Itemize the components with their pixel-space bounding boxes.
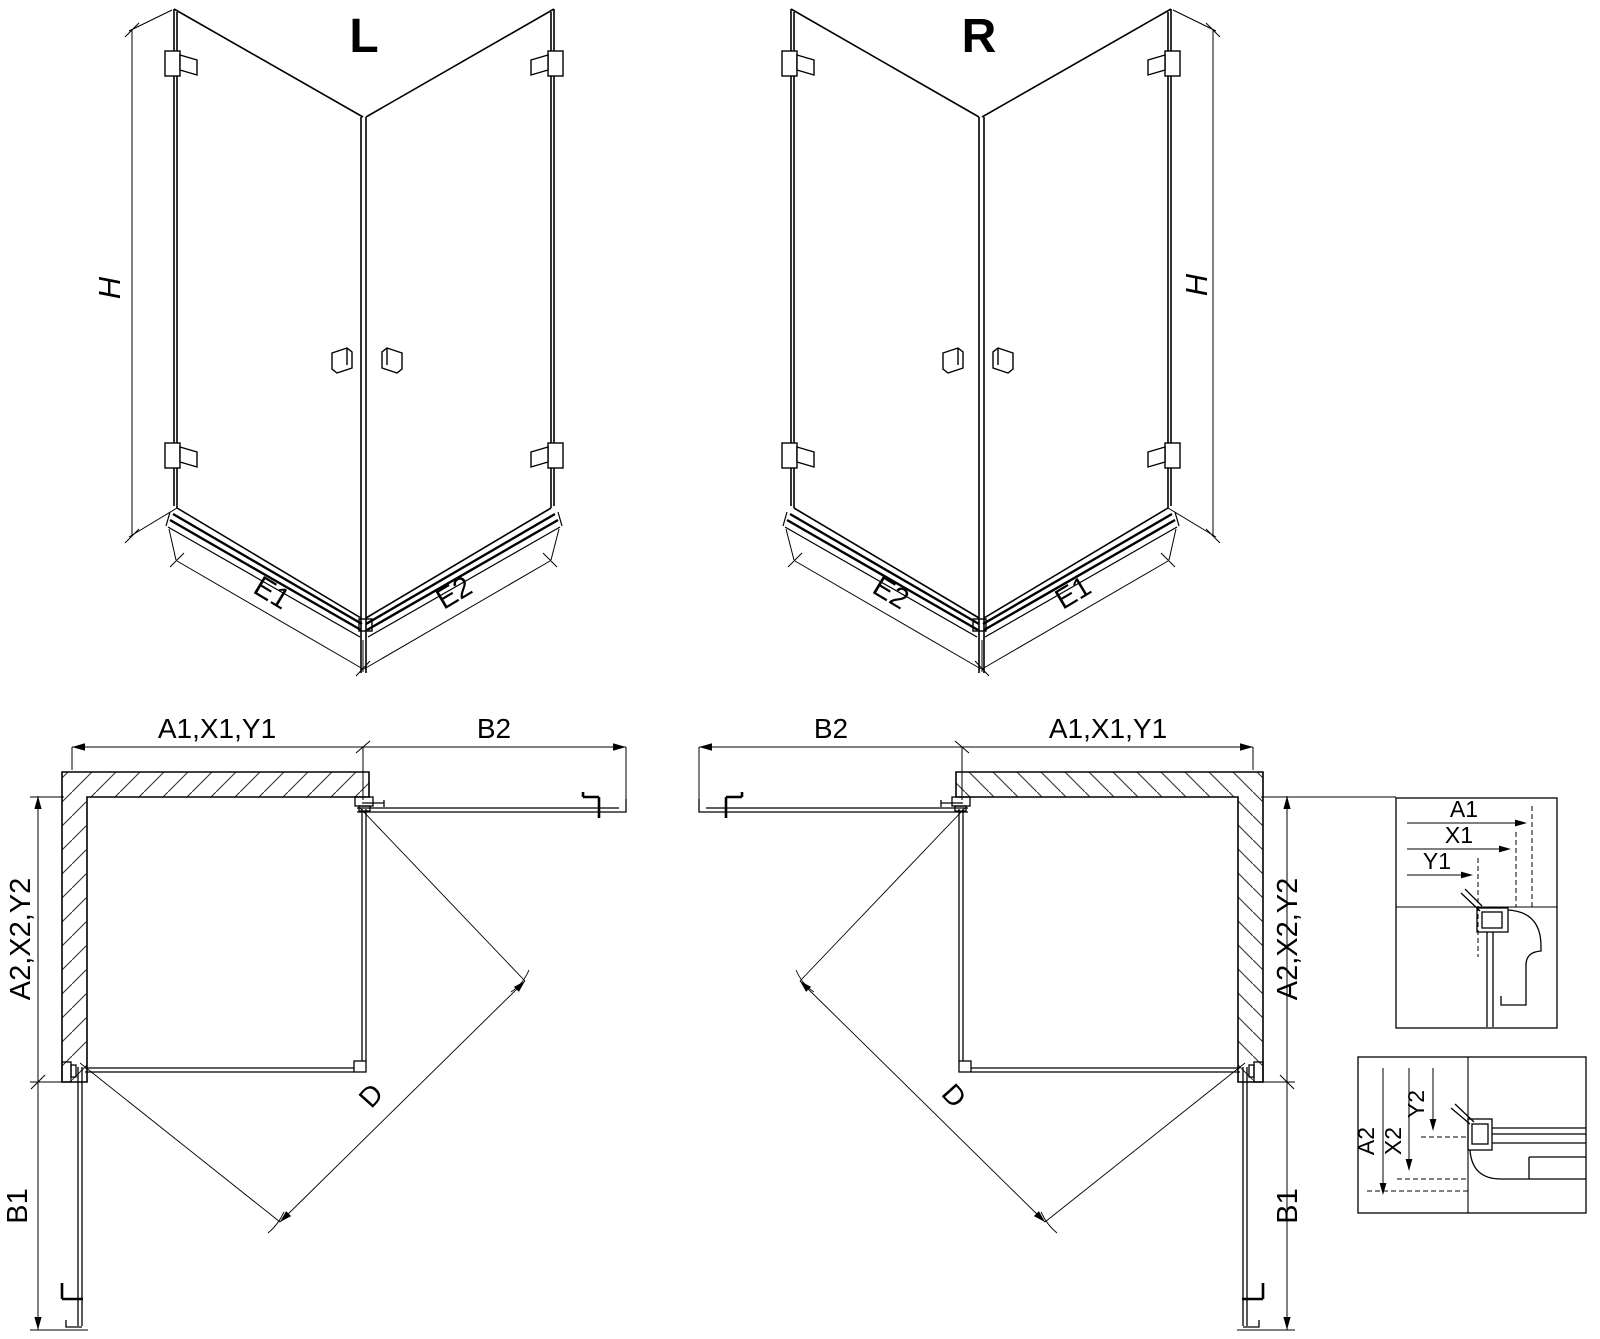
- plan-left-side-bottom-dim: B1: [2, 1188, 34, 1223]
- technical-drawing: L R H H E1 E2 E2 E1 A1,X1,Y1 B2 A2,X2,Y2…: [0, 0, 1600, 1339]
- wall-profile-section: [1451, 1104, 1586, 1179]
- iso-view-right: [782, 9, 1220, 676]
- wall-profile-section: [1461, 889, 1541, 1027]
- plan-view-right: [699, 741, 1295, 1330]
- iso-left-height-label: H: [92, 276, 127, 299]
- plan-right-side-bottom-dim: B1: [1272, 1188, 1304, 1223]
- iso-right-height-label: H: [1179, 273, 1214, 296]
- iso-right-title: R: [962, 10, 997, 63]
- plan-right-top-left-dim: B2: [814, 713, 848, 744]
- plan-right-diagonal-dim: D: [936, 1078, 973, 1114]
- iso-view-left: [125, 9, 563, 676]
- drawing-sheet: L R H H E1 E2 E2 E1 A1,X1,Y1 B2 A2,X2,Y2…: [0, 0, 1600, 1339]
- iso-left-edge-right-label: E2: [431, 570, 478, 616]
- plan-right-side-dim: A2,X2,Y2: [1272, 878, 1304, 1001]
- detail-h-dim-x: X1: [1445, 822, 1473, 848]
- detail-h-dim-a: A1: [1450, 796, 1478, 822]
- plan-left-top-right-dim: B2: [477, 713, 511, 744]
- detail-v-dim-a: A2: [1353, 1127, 1379, 1155]
- iso-left-title: L: [349, 10, 378, 63]
- plan-left-side-dim: A2,X2,Y2: [5, 878, 37, 1001]
- plan-left-diagonal-dim: D: [353, 1078, 390, 1114]
- detail-v-dim-x: X2: [1380, 1127, 1406, 1155]
- plan-right-top-right-dim: A1,X1,Y1: [1049, 713, 1167, 744]
- detail-h-dim-y: Y1: [1423, 848, 1451, 874]
- plan-left-top-left-dim: A1,X1,Y1: [158, 713, 276, 744]
- plan-view-left: [30, 741, 626, 1330]
- detail-box-horizontal: [1396, 798, 1557, 1028]
- detail-v-dim-y: Y2: [1403, 1090, 1429, 1118]
- iso-right-edge-left-label: E2: [867, 570, 914, 616]
